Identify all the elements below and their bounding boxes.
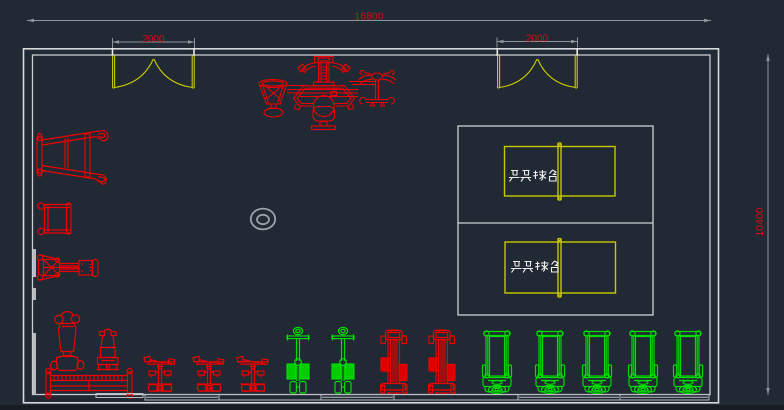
svg-text:16800: 16800 — [354, 11, 383, 23]
svg-text:10400: 10400 — [754, 207, 766, 236]
svg-text:2000: 2000 — [526, 34, 549, 45]
svg-text:2000: 2000 — [142, 34, 165, 45]
